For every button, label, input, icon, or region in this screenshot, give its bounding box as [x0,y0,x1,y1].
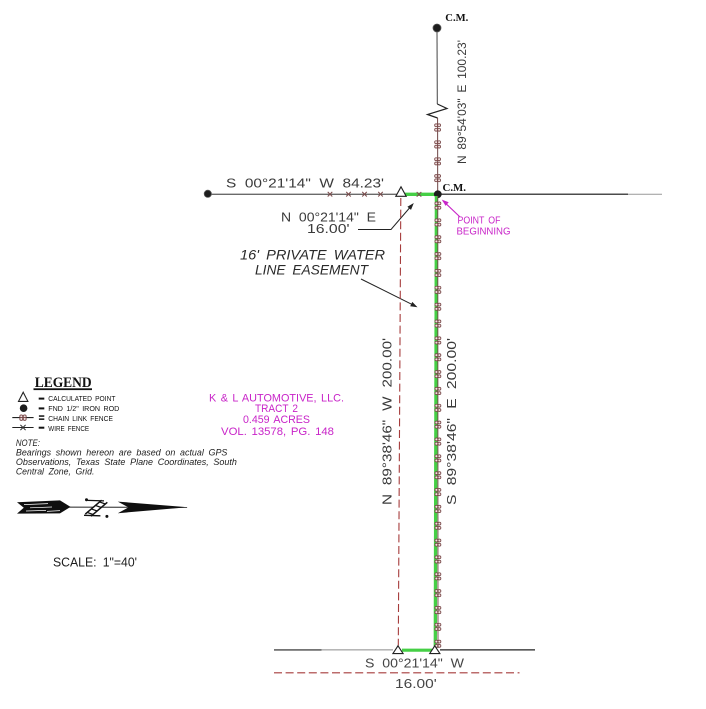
svg-text:Central Zone, Grid.: Central Zone, Grid. [16,467,95,477]
svg-text:Bearings shown hereon are base: Bearings shown hereon are based on actua… [16,447,228,457]
svg-text:Observations, Texas State Plan: Observations, Texas State Plane Coordina… [16,457,237,467]
svg-text:N 89°54'03" E 100.23': N 89°54'03" E 100.23' [455,40,469,164]
svg-text:S 89°38'46" E 200.00': S 89°38'46" E 200.00' [444,338,459,505]
svg-text:BEGINNING: BEGINNING [457,226,511,238]
svg-text:C.M.: C.M. [445,13,468,24]
svg-text:FND 1/2" IRON ROD: FND 1/2" IRON ROD [48,404,119,413]
svg-text:16' PRIVATE WATER: 16' PRIVATE WATER [240,247,385,263]
svg-text:LINE EASEMENT: LINE EASEMENT [255,262,369,278]
svg-text:CHAIN LINK FENCE: CHAIN LINK FENCE [48,414,113,423]
svg-text:16.00': 16.00' [307,222,350,236]
svg-text:VOL. 13578, PG. 148: VOL. 13578, PG. 148 [221,426,334,438]
svg-text:WIRE FENCE: WIRE FENCE [48,424,89,433]
svg-text:CALCULATED POINT: CALCULATED POINT [48,394,116,403]
svg-text:SCALE: 1"=40': SCALE: 1"=40' [53,555,137,570]
svg-text:TRACT 2: TRACT 2 [255,403,298,415]
svg-text:16.00': 16.00' [395,677,437,691]
svg-text:0.459 ACRES: 0.459 ACRES [243,414,310,426]
svg-text:S 00°21'14" W 84.23': S 00°21'14" W 84.23' [226,176,384,190]
svg-text:N 89°38'46" W 200.00': N 89°38'46" W 200.00' [380,338,395,505]
svg-text:S 00°21'14" W: S 00°21'14" W [365,657,464,671]
svg-text:C.M.: C.M. [443,183,467,194]
